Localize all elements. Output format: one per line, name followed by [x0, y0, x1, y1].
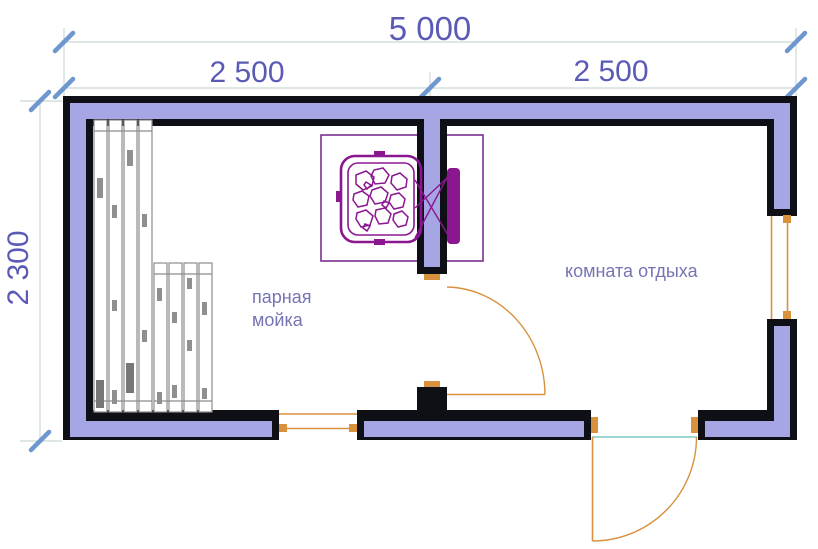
window-right: [767, 209, 798, 326]
floor-plan-canvas: 5 000 2 500 2 500 2 300: [0, 0, 818, 549]
wood-mark: [112, 300, 117, 311]
stone: [389, 193, 405, 209]
wood-mark: [127, 150, 133, 166]
stone: [353, 191, 369, 207]
stone: [375, 208, 391, 224]
stove-heater: [336, 151, 421, 245]
partition-wall: [417, 108, 447, 411]
stone: [393, 211, 408, 227]
door-jamb: [424, 274, 440, 280]
window-bottom: [272, 410, 364, 441]
bench-plank: [139, 120, 152, 412]
wall-end-cap: [357, 410, 364, 440]
wood-mark: [126, 363, 134, 393]
room-label-steam-line1: парная: [252, 287, 311, 307]
wall-end-cap: [584, 410, 591, 440]
entrance-door: [584, 410, 705, 541]
wood-mark: [172, 385, 177, 398]
room-labels: парная мойка комната отдыха: [252, 261, 699, 330]
dimension-label-left-section: 2 500: [209, 56, 284, 89]
bench-tier-short: [154, 263, 212, 412]
bench-plank: [94, 120, 107, 412]
door-swing-arc: [593, 437, 697, 541]
window-frame-cap: [349, 424, 357, 432]
wood-mark: [172, 312, 177, 323]
window-frame-cap: [783, 311, 791, 319]
wood-mark: [157, 288, 162, 301]
stove-tab: [374, 239, 385, 245]
bench-tier-long: [94, 120, 152, 412]
wall-end-cap: [698, 410, 705, 440]
door-jamb: [691, 417, 698, 433]
bench-plank: [109, 120, 122, 412]
stove-firebox: [447, 168, 460, 244]
interior-door: [447, 287, 545, 395]
stove-tab: [374, 151, 385, 157]
wood-mark: [202, 302, 207, 315]
door-jamb: [424, 381, 440, 387]
wood-mark: [112, 205, 117, 218]
stone: [382, 201, 389, 208]
steam-room-benches: [94, 120, 212, 412]
wood-mark: [142, 214, 147, 227]
stone: [363, 224, 370, 231]
wood-mark: [187, 278, 192, 289]
wall-left-core: [70, 103, 86, 437]
wood-mark: [157, 392, 162, 404]
stove-stones: [353, 168, 408, 231]
room-label-rest: комната отдыха: [565, 261, 699, 281]
wall-end-cap: [767, 209, 797, 216]
wood-mark: [187, 340, 192, 351]
wood-mark: [97, 178, 103, 198]
wood-mark: [112, 390, 117, 404]
wall-end-cap: [767, 319, 797, 326]
wood-mark: [96, 380, 104, 408]
dimension-label-overall-depth: 2 300: [2, 230, 35, 305]
room-label-steam-line2: мойка: [252, 310, 304, 330]
window-frame-cap: [783, 215, 791, 223]
stove-tab: [336, 191, 342, 202]
dimension-label-overall-width: 5 000: [389, 10, 472, 47]
bench-plank: [154, 263, 167, 412]
door-swing-arc: [447, 287, 545, 395]
wood-mark: [142, 330, 147, 342]
stone: [391, 173, 407, 190]
window-frame-cap: [279, 424, 287, 432]
door-jamb: [591, 417, 598, 433]
floor-plan-page: 5 000 2 500 2 500 2 300: [0, 0, 818, 549]
wall-end-cap: [272, 410, 279, 440]
stone: [364, 182, 371, 189]
wood-mark: [202, 388, 207, 399]
dimension-label-right-section: 2 500: [573, 55, 648, 88]
partition-lower-stub: [417, 387, 447, 411]
